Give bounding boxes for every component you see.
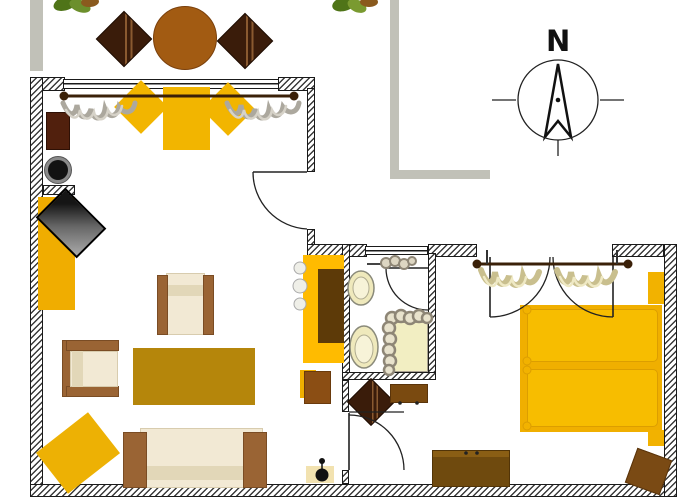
coffee-table (133, 348, 255, 405)
wall-bath-right (428, 253, 436, 380)
plant-right-leaf-3 (360, 0, 378, 7)
sofa-front-band (145, 466, 258, 480)
plant-left-leaf-2 (68, 0, 93, 15)
armchair-top-band (167, 285, 204, 296)
wall-bath-bottom (342, 372, 436, 380)
bath-sink-basin (353, 277, 369, 299)
towel-blob-3 (399, 259, 409, 269)
armchair-top-arm-right (203, 275, 214, 335)
hall-stool (347, 378, 395, 426)
plant-right-leaf-1 (331, 0, 358, 14)
wall-hall-lower (342, 470, 349, 484)
wall-living-right-upper (307, 88, 315, 172)
balcony-table (153, 6, 217, 70)
armchair-top-seat (166, 273, 205, 335)
plant-left-leaf-1 (51, 0, 80, 14)
living-side-table (46, 112, 70, 150)
rug (36, 412, 120, 494)
armchair-top-arm-left (157, 275, 168, 335)
wardrobe-inset (318, 269, 344, 343)
terrace-rail-vertical (390, 0, 399, 178)
bath-toilet (350, 326, 378, 368)
towel-blob-4 (408, 257, 416, 265)
bedroom-curtain-right-hl (560, 277, 602, 286)
compass-needle (545, 64, 571, 137)
living-pot (48, 160, 68, 180)
compass-north-label: N (546, 27, 570, 56)
nightstand-top (648, 272, 664, 304)
curtain-rod-finial-right (290, 92, 299, 101)
wall-mid-c (612, 244, 664, 257)
balcony-chair-left (96, 11, 153, 68)
towel-blob-1 (381, 258, 391, 268)
armchair-left-band (72, 351, 83, 387)
bath-door-arc (386, 268, 428, 310)
bed-rod-finial-right (624, 260, 633, 269)
hall-door-arc (349, 415, 404, 470)
floor-lamp-bulb (319, 458, 325, 464)
sofa-arm-right (243, 432, 267, 488)
bed-mattress-top (527, 309, 658, 362)
compass-center-dot (556, 98, 561, 103)
wall-hall-upper (342, 380, 349, 412)
dining-table (163, 87, 210, 150)
bedroom-curtain-left-hl (484, 277, 526, 286)
bedroom-dresser-top-band (433, 451, 509, 457)
bath-toilet-bowl (355, 335, 373, 363)
shower-tray (388, 322, 428, 372)
compass-ring (518, 60, 598, 140)
armchair-left-arm-top (66, 340, 119, 351)
plant-right-leaf-2 (345, 0, 368, 16)
terrace-rail-horizontal (390, 170, 490, 179)
floor-plan: N (0, 0, 700, 500)
bathroom-window (365, 246, 428, 255)
living-door-arc (253, 172, 307, 229)
bedroom-curtain-left (481, 270, 539, 285)
sofa-arm-left (123, 432, 147, 488)
bath-sink (348, 271, 374, 305)
curtain-rod-finial-left (60, 92, 69, 101)
towel-blob-2 (390, 256, 400, 266)
plant-left-leaf-3 (81, 0, 100, 8)
living-curtain-left-hl (66, 106, 122, 119)
bed-rod-finial-left (473, 260, 482, 269)
shower-curtain-coil-4 (413, 310, 425, 322)
shower-curtain-coil-2 (395, 310, 407, 322)
armchair-left-arm-bottom (66, 386, 119, 397)
hall-side-table (304, 371, 331, 404)
bed-mattress-bottom (527, 369, 658, 427)
floor-lamp-mat (306, 466, 334, 483)
bedroom-side-table (390, 384, 428, 403)
bedroom-curtain-right (557, 270, 615, 285)
nightstand-bottom (648, 430, 664, 446)
balcony-rail-left (30, 0, 43, 71)
balcony-chair-right (217, 13, 274, 70)
